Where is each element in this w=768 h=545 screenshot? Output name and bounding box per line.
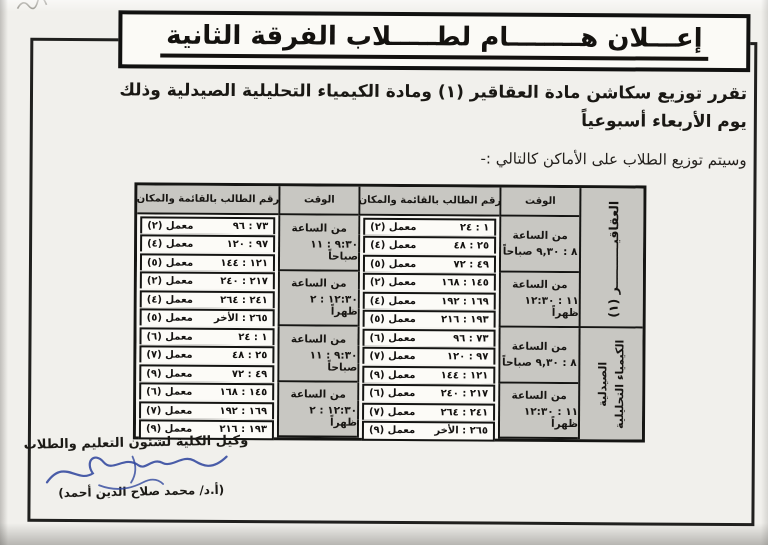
lab-label: معمل (٢) [147, 276, 193, 287]
time-cell: من الساعة ٨ : ٩,٣٠ صباحاً [498, 328, 578, 384]
student-range: ١٢١ : ١٤٤ [220, 258, 268, 269]
signature-scribble [40, 446, 237, 496]
student-range: ١٤٥ : ١٦٨ [441, 278, 489, 289]
lab-label: معمل (٩) [369, 425, 415, 436]
schedule-row: ١٢١ : ١٤٤معمل (٩) [357, 364, 498, 383]
lab-label: معمل (٥) [147, 257, 193, 268]
schedule-row: ٤٩ : ٧٢معمل (٥) [358, 253, 499, 272]
schedule-row: ٩٧ : ١٢٠معمل (٤) [137, 233, 278, 252]
lab-label: معمل (٦) [369, 333, 415, 344]
table-header-students-b: رقم الطالب بالقائمة والمكان [137, 185, 278, 215]
schedule-row: ٢١٧ : ٢٤٠معمل (٢) [137, 270, 278, 289]
student-range: ٩٧ : ١٢٠ [447, 352, 489, 363]
lab-label: معمل (٧) [146, 350, 192, 361]
lab-label: معمل (٢) [370, 277, 416, 288]
table-header-time-a: الوقت [499, 188, 579, 217]
schedule-row: ٢٤١ : ٢٦٤معمل (٧) [357, 401, 498, 420]
schedule-row: ١٤٥ : ١٦٨معمل (٢) [358, 271, 499, 290]
time-cell: من الساعة ١١ : ١٢:٣٠ ظهراً [498, 383, 578, 439]
student-range: ١٢١ : ١٤٤ [441, 370, 489, 381]
schedule-row: ١٩٣ : ٢١٦معمل (٥) [358, 308, 499, 327]
time-cell: من الساعة ٩:٣٠ : ١١ صباحاً [277, 326, 357, 382]
student-range: ٢٦٥ : الأخر [434, 425, 488, 436]
student-range: ١ : ٢٤ [238, 332, 267, 343]
schedule-row: ٤٩ : ٧٢معمل (٩) [136, 362, 277, 381]
student-range: ٢٦٥ : الأخر [214, 313, 268, 324]
schedule-row: ٧٣ : ٩٦معمل (٦) [357, 327, 498, 346]
intro-line-1: تقرر توزيع سكاشن مادة العقاقير (١) ومادة… [41, 77, 747, 109]
lab-label: معمل (٧) [369, 351, 415, 362]
time-cell: من الساعة ٨ : ٩,٣٠ صباحاً [499, 217, 579, 273]
student-range: ٢٥ : ٤٨ [454, 241, 489, 252]
lab-label: معمل (٤) [147, 239, 193, 250]
student-range: ٢٤١ : ٢٦٤ [220, 295, 268, 306]
subject-cell-pharmacognosy: العقاقيــــــــــر (١) [579, 188, 644, 328]
lab-label: معمل (٩) [369, 370, 415, 381]
lab-label: معمل (٤) [370, 240, 416, 251]
schedule-row: ٢٦٥ : الأخرمعمل (٩) [357, 419, 498, 438]
lab-label: معمل (٩) [146, 368, 192, 379]
schedule-row: ٢٥ : ٤٨معمل (٧) [136, 344, 277, 363]
intro-line-2: يوم الأربعاء أسبوعياً [41, 104, 747, 136]
lab-label: معمل (٤) [147, 294, 193, 305]
lab-label: معمل (٦) [146, 387, 192, 398]
lab-label: معمل (٢) [370, 222, 416, 233]
lab-label: معمل (٥) [147, 313, 193, 324]
signature-block: وكيل الكلية لشئون التعليم والطلاب (أ.د/ … [32, 433, 249, 500]
schedule-row: ١٤٥ : ١٦٨معمل (٦) [136, 381, 277, 400]
table-header-students-a: رقم الطالب بالقائمة والمكان [358, 187, 499, 217]
student-range: ٢٥ : ٤٨ [232, 350, 267, 361]
student-range: ٧٣ : ٩٦ [453, 333, 488, 344]
schedule-row: ١ : ٢٤معمل (٢) [358, 216, 499, 235]
time-cell: من الساعة ١٢:٣٠ : ٢ ظهراً [277, 382, 357, 438]
lab-label: معمل (٧) [369, 407, 415, 418]
student-range: ٧٣ : ٩٦ [233, 221, 268, 232]
student-range: ١٦٩ : ١٩٢ [219, 406, 267, 417]
lab-label: معمل (٥) [370, 259, 416, 270]
schedule-row: ٢٦٥ : الأخرمعمل (٥) [137, 307, 278, 326]
lab-label: معمل (٥) [370, 314, 416, 325]
schedule-row: ١٦٩ : ١٩٢معمل (٧) [136, 399, 277, 418]
lab-label: معمل (٧) [146, 405, 192, 416]
schedule-row: ٢٥ : ٤٨معمل (٤) [358, 234, 499, 253]
lab-label: معمل (٩) [146, 424, 192, 435]
schedule-row: ٩٧ : ١٢٠معمل (٧) [357, 345, 498, 364]
student-range: ٤٩ : ٧٢ [454, 259, 489, 270]
announcement-title: إعـــلان هــــــــام لطـــــلاب الفرقة ا… [160, 22, 709, 61]
subject-cell-analytical-chemistry: الكيمياء التحليلية الصيدلية [578, 328, 643, 439]
student-range: ١٤٥ : ١٦٨ [220, 387, 268, 398]
student-range: ١٦٩ : ١٩٢ [441, 296, 489, 307]
student-range: ١ : ٢٤ [460, 222, 489, 233]
schedule-table: العقاقيــــــــــر (١) الكيمياء التحليلي… [133, 182, 647, 442]
time-cell: من الساعة ١٢:٣٠ : ٢ ظهراً [278, 271, 358, 327]
student-range: ٢١٧ : ٢٤٠ [441, 389, 489, 400]
lab-label: معمل (٦) [369, 388, 415, 399]
subject-label-pharmacognosy: العقاقيــــــــــر (١) [582, 189, 643, 329]
student-range: ٢٤١ : ٢٦٤ [440, 407, 488, 418]
scanned-announcement-page: إعـــلان هــــــــام لطـــــلاب الفرقة ا… [0, 0, 768, 545]
lab-label: معمل (٢) [147, 220, 193, 231]
time-cell: من الساعة ١١ : ١٢:٣٠ ظهراً [499, 272, 579, 328]
student-range: ٢١٧ : ٢٤٠ [220, 276, 268, 287]
title-box: إعـــلان هــــــــام لطـــــلاب الفرقة ا… [118, 10, 750, 72]
paper: إعـــلان هــــــــام لطـــــلاب الفرقة ا… [0, 0, 768, 545]
time-cell: من الساعة ٩:٣٠ : ١١ صباحاً [278, 215, 358, 271]
lab-label: معمل (٤) [370, 296, 416, 307]
table-header-time-b: الوقت [278, 186, 358, 215]
subject-label-analytical-chemistry: الكيمياء التحليلية الصيدلية [581, 330, 642, 438]
distribution-note: وسيتم توزيع الطلاب على الأماكن كالتالي :… [421, 149, 747, 169]
lab-label: معمل (٦) [146, 331, 192, 342]
schedule-row: ١٢١ : ١٤٤معمل (٥) [137, 251, 278, 270]
student-range: ١٩٣ : ٢١٦ [441, 315, 489, 326]
student-range: ٩٧ : ١٢٠ [227, 239, 269, 250]
schedule-row: ٢٤١ : ٢٦٤معمل (٤) [137, 288, 278, 307]
schedule-row: ٧٣ : ٩٦معمل (٢) [137, 214, 278, 233]
schedule-row: ٢١٧ : ٢٤٠معمل (٦) [357, 382, 498, 401]
schedule-row: ١٦٩ : ١٩٢معمل (٤) [358, 290, 499, 309]
student-range: ٤٩ : ٧٢ [232, 369, 267, 380]
scan-corner-mark [16, 0, 50, 12]
intro-paragraph: تقرر توزيع سكاشن مادة العقاقير (١) ومادة… [41, 77, 747, 136]
schedule-row: ١ : ٢٤معمل (٦) [136, 325, 277, 344]
